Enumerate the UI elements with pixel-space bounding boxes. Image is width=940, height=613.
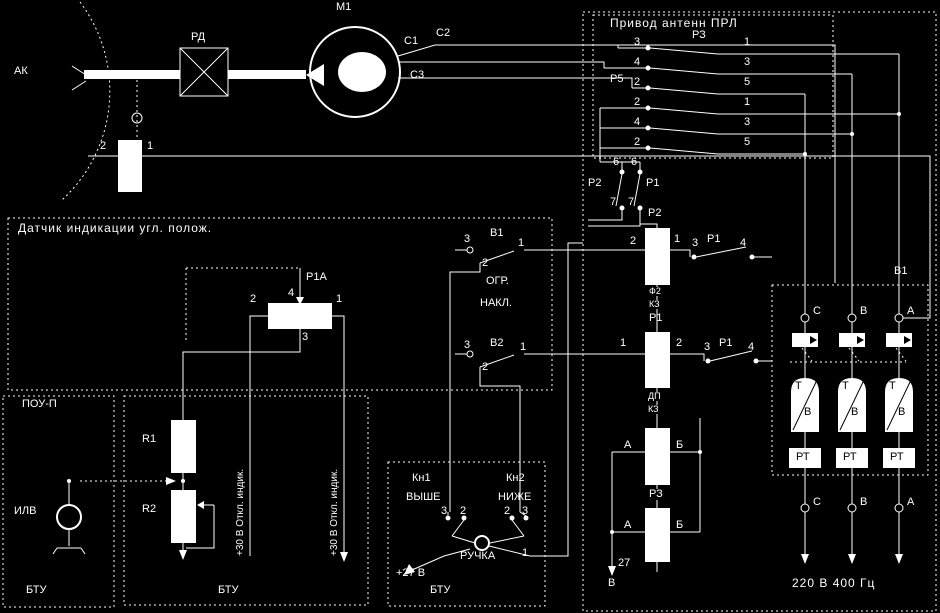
kn2-terminal-2: 2 bbox=[504, 506, 510, 517]
relay-coils bbox=[524, 228, 772, 576]
buttons-dest-label: БТУ bbox=[430, 585, 450, 596]
thermal-relay-rt1: РТ bbox=[796, 452, 810, 463]
kn2-terminal-3: 3 bbox=[522, 506, 528, 517]
ak-label: АК bbox=[14, 66, 28, 77]
privod-row5-left: 4 bbox=[634, 117, 640, 128]
privod-row4-right: 1 bbox=[744, 97, 750, 108]
wire-label-indik-1: +30 В Откл. индик. bbox=[236, 469, 246, 556]
privod-title: Привод антенн ПРЛ bbox=[610, 17, 738, 29]
p2-contact-label: Р2 bbox=[588, 178, 601, 189]
coil4-terminal-a: А bbox=[624, 520, 631, 531]
b2-terminal-2: 2 bbox=[482, 362, 488, 373]
contact-terminal-6b: 6 bbox=[631, 157, 637, 168]
privod-row1-left: 3 bbox=[634, 37, 640, 48]
fuse2-letter-v: В bbox=[851, 407, 858, 418]
pot-terminal-1: 1 bbox=[336, 294, 342, 305]
sensor-terminal-2: 2 bbox=[100, 141, 106, 152]
contact-terminal-7a: 7 bbox=[610, 197, 616, 208]
wire-c2-label: С2 bbox=[436, 28, 450, 39]
pou-dest-label: БТУ bbox=[26, 585, 46, 596]
plus-27v-label: +27 В bbox=[396, 568, 425, 579]
supply-27v-unit: В bbox=[608, 578, 615, 589]
p1-contact-label: Р1 bbox=[646, 178, 659, 189]
resistors bbox=[171, 420, 214, 560]
schematic-lines bbox=[0, 0, 940, 613]
potentiometer-label: Р1А bbox=[306, 272, 327, 283]
relay-contacts-67 bbox=[588, 162, 657, 228]
contact1-label: Р1 bbox=[707, 234, 720, 245]
contact-terminal-7b: 7 bbox=[628, 197, 634, 208]
supply-27v-value: 27 bbox=[618, 558, 630, 569]
wire-tag-f2: Ф2 bbox=[647, 287, 663, 296]
coil4-terminal-b: Б bbox=[676, 520, 683, 531]
contact-terminal-6a: 6 bbox=[613, 157, 619, 168]
thermal-relay-rt3: РТ bbox=[890, 452, 904, 463]
motor-label: М1 bbox=[336, 2, 351, 13]
button-kn2-label: Кн2 bbox=[506, 473, 525, 484]
contact2-terminal-4: 4 bbox=[748, 342, 754, 353]
knob-terminal-1: 1 bbox=[522, 548, 528, 559]
privod-row2-left: 4 bbox=[634, 57, 640, 68]
r3-coil-label: РЗ bbox=[647, 489, 665, 500]
wire-tag-k3b: КЗ bbox=[646, 405, 661, 414]
fuse1-letter-t: Т bbox=[795, 381, 802, 392]
potentiometer bbox=[183, 268, 348, 562]
contact2-label: Р1 bbox=[719, 338, 732, 349]
enclosure-borders bbox=[3, 12, 936, 611]
limit-switch-b1-label: В1 bbox=[490, 228, 503, 239]
wire-label-indik-2: +30 В Откл. индик. bbox=[330, 469, 340, 556]
contact2-terminal-3: 3 bbox=[704, 342, 710, 353]
antenna-symbol bbox=[62, 2, 110, 200]
privod-row3-left: 2 bbox=[634, 77, 640, 88]
phase-v-bottom: В bbox=[860, 497, 867, 508]
phase-v-top: В bbox=[860, 306, 867, 317]
power-block-b1-label: В1 bbox=[894, 266, 907, 277]
phase-a-top: А bbox=[907, 306, 914, 317]
lamp-ilv-label: ИЛВ bbox=[14, 506, 36, 517]
button-up-caption: ВЫШЕ bbox=[406, 492, 441, 503]
kn1-terminal-3: 3 bbox=[441, 506, 447, 517]
gearbox-label: РД bbox=[191, 32, 205, 43]
wire-tag-dp: ДП bbox=[646, 392, 663, 401]
wire-c3-label: С3 bbox=[410, 70, 424, 81]
relay-r5-contact-label: Р5 bbox=[610, 74, 623, 85]
button-kn1-label: Кн1 bbox=[412, 473, 431, 484]
phase-c-bottom: С bbox=[813, 497, 821, 508]
privod-row4-left: 2 bbox=[634, 97, 640, 108]
supply-220v-label: 220 В 400 Гц bbox=[792, 577, 875, 589]
rblock-dest-label: БТУ bbox=[218, 585, 238, 596]
p2-coil-terminal-1: 1 bbox=[674, 234, 680, 245]
thermal-relay-rt2: РТ bbox=[843, 452, 857, 463]
fuse1-letter-v: В bbox=[804, 407, 811, 418]
pou-block-title: ПОУ-П bbox=[22, 399, 57, 410]
privod-row6-right: 5 bbox=[744, 137, 750, 148]
privod-row3-right: 5 bbox=[744, 77, 750, 88]
resistor-r1-label: R1 bbox=[142, 434, 156, 445]
pot-terminal-4: 4 bbox=[288, 288, 294, 299]
p2-coil-terminal-2: 2 bbox=[630, 236, 636, 247]
p1-coil-terminal-1: 1 bbox=[620, 338, 626, 349]
wire-c1-label: С1 bbox=[404, 36, 418, 47]
pot-terminal-3: 3 bbox=[302, 332, 308, 343]
privod-row6-left: 2 bbox=[634, 137, 640, 148]
b2-terminal-1: 1 bbox=[520, 342, 526, 353]
power-block bbox=[789, 54, 915, 564]
p2-coil-label: Р2 bbox=[648, 208, 661, 219]
phase-a-bottom: А bbox=[907, 497, 914, 508]
p1-coil-label: Р1 bbox=[649, 313, 662, 324]
shaft-sensor bbox=[88, 80, 930, 318]
coil3-terminal-a: А bbox=[624, 440, 631, 451]
contact1-terminal-4: 4 bbox=[740, 238, 746, 249]
relay-r3-contact-label: РЗ bbox=[692, 30, 706, 41]
resistor-r2-label: R2 bbox=[142, 504, 156, 515]
button-down-caption: НИЖЕ bbox=[498, 492, 531, 503]
contact1-terminal-3: 3 bbox=[692, 238, 698, 249]
b1-terminal-1: 1 bbox=[518, 238, 524, 249]
b1-terminal-2: 2 bbox=[482, 258, 488, 269]
limit-switch-b2-label: В2 bbox=[490, 338, 503, 349]
fuse2-letter-t: Т bbox=[842, 381, 849, 392]
fuse3-letter-t: Т bbox=[889, 381, 896, 392]
b1-terminal-3: 3 bbox=[464, 234, 470, 245]
fuse3-letter-v: В bbox=[898, 407, 905, 418]
phase-c-top: С bbox=[813, 306, 821, 317]
knob-ruchka-label: РУЧКА bbox=[460, 551, 495, 562]
datchik-title: Датчик индикации угл. полож. bbox=[18, 222, 212, 234]
coil3-terminal-b: Б bbox=[676, 440, 683, 451]
b2-terminal-3: 3 bbox=[464, 340, 470, 351]
pot-terminal-2: 2 bbox=[250, 294, 256, 305]
p1-coil-terminal-2: 2 bbox=[676, 338, 682, 349]
motor-symbol bbox=[228, 27, 400, 117]
limit-caption-ogr: ОГР. bbox=[486, 276, 509, 287]
privod-row5-right: 3 bbox=[744, 117, 750, 128]
button-block bbox=[404, 243, 583, 575]
wire-tag-k3: КЗ bbox=[647, 300, 662, 309]
limit-caption-nakl: НАКЛ. bbox=[480, 298, 512, 309]
privod-row2-right: 3 bbox=[744, 57, 750, 68]
sensor-terminal-1: 1 bbox=[147, 141, 153, 152]
privod-row1-right: 1 bbox=[744, 37, 750, 48]
kn1-terminal-2: 2 bbox=[460, 506, 466, 517]
gearbox-symbol bbox=[84, 48, 228, 96]
schematic-page: АК РД М1 С1 С2 С3 2 1 Привод антенн ПРЛ … bbox=[0, 0, 940, 613]
